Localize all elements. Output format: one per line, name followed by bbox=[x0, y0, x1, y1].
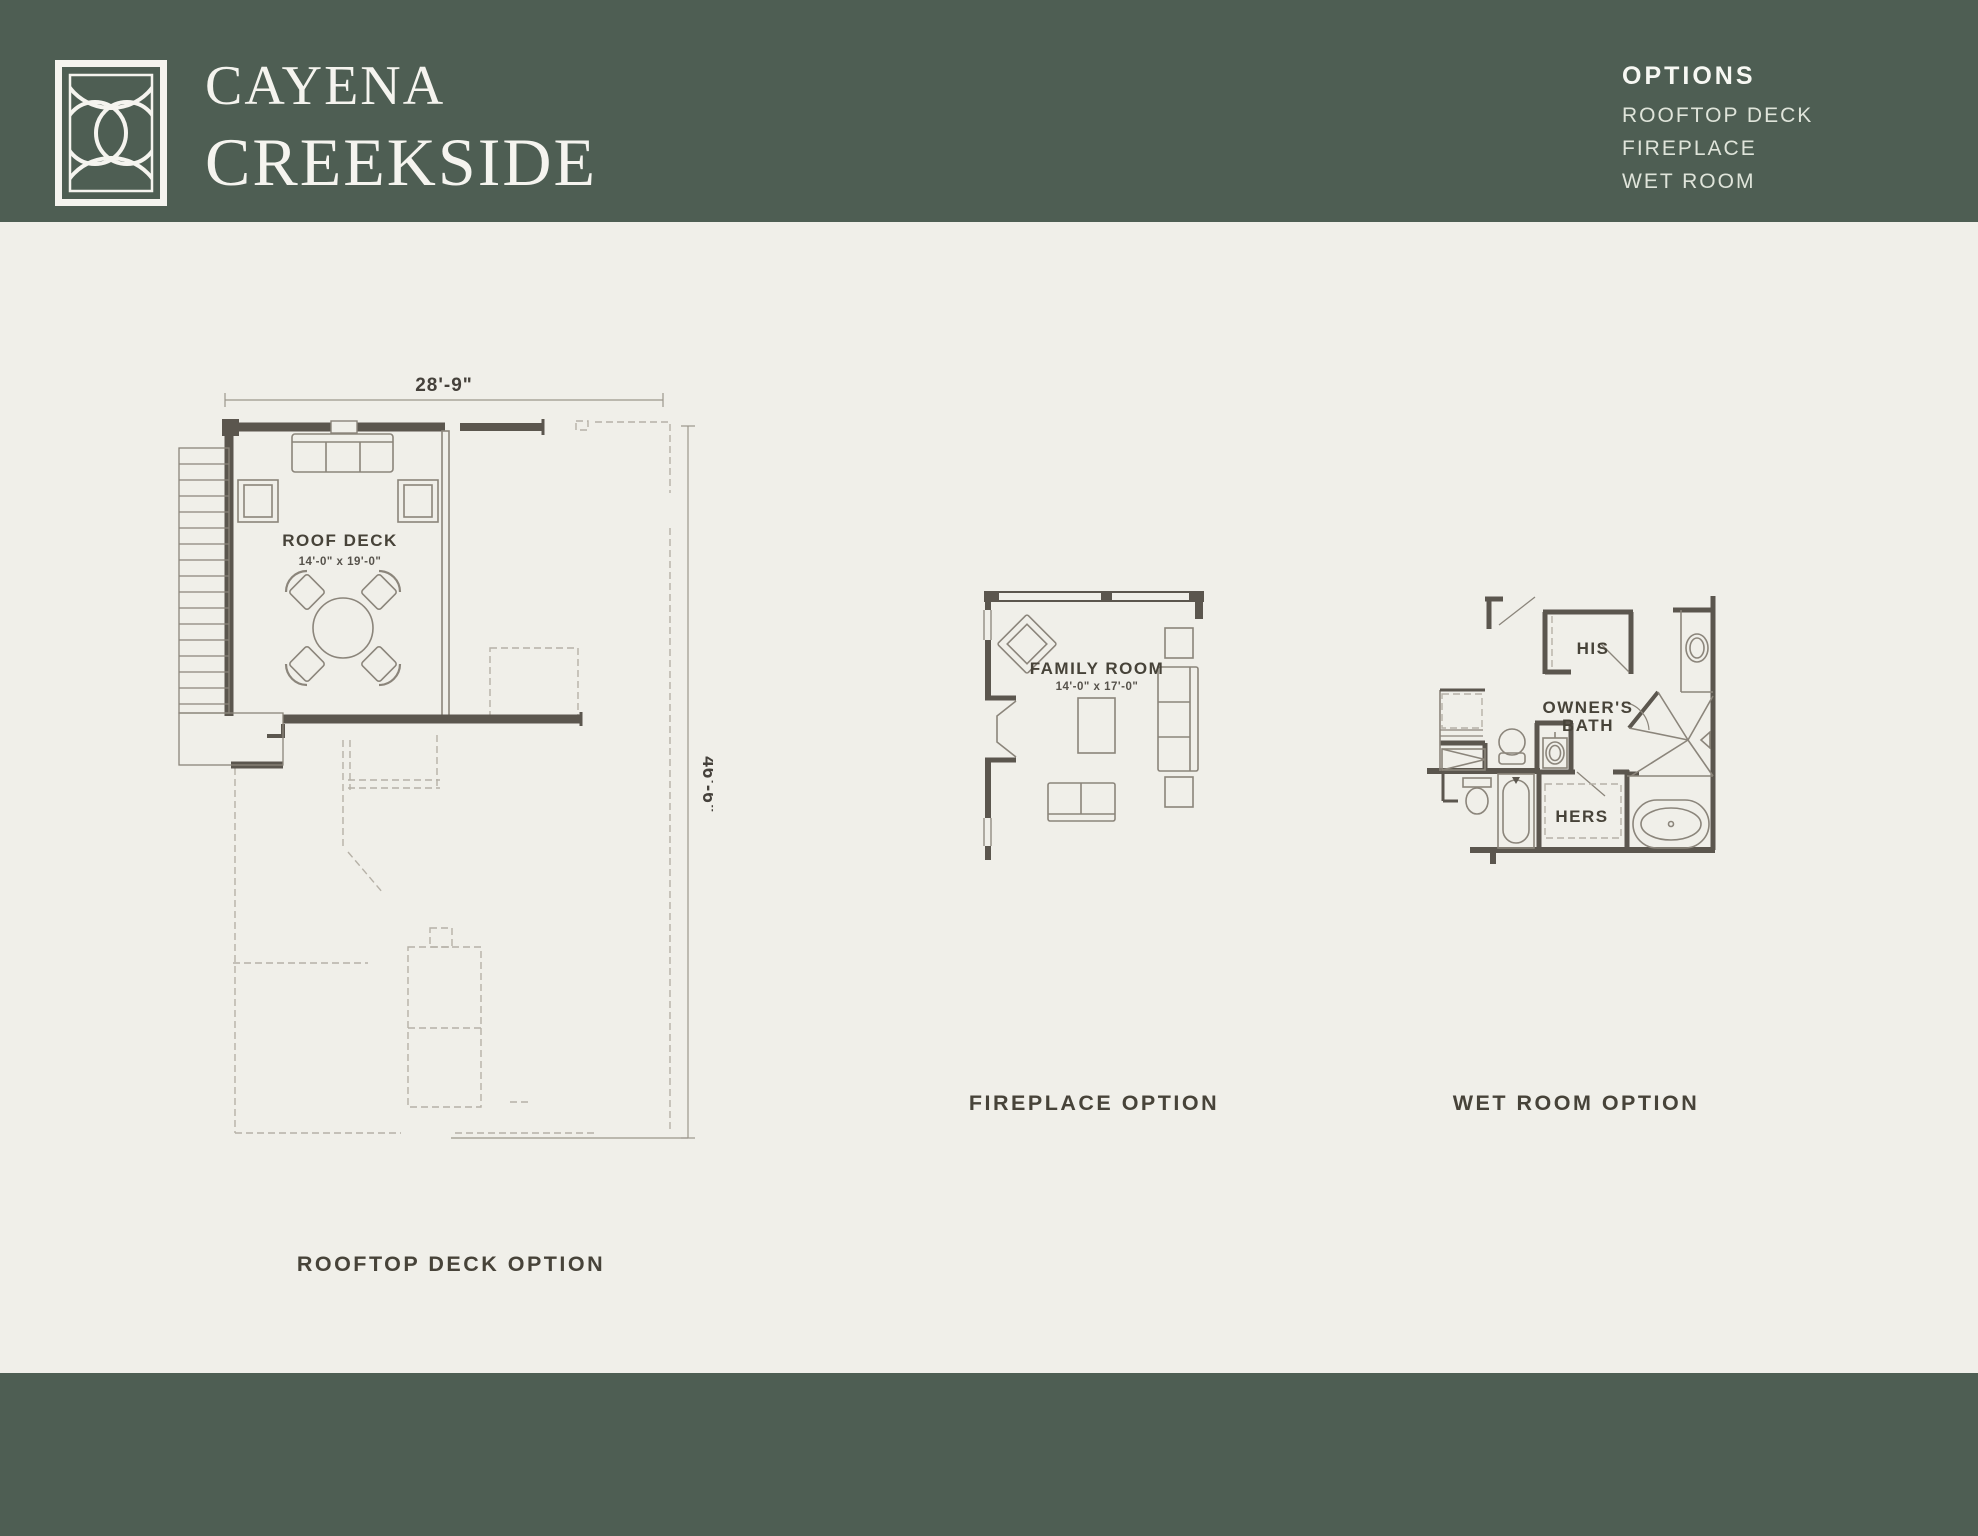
family-room-furniture bbox=[997, 614, 1198, 821]
brand-logo-icon bbox=[55, 60, 167, 206]
rooftop-deck-floorplan: 28'-9" 46'-6" bbox=[143, 288, 713, 1193]
height-dimension-label: 46'-6" bbox=[698, 756, 713, 814]
brand-name-line1: CAYENA bbox=[205, 58, 445, 114]
roof-outline-dashed bbox=[233, 421, 670, 1133]
wet-room-floorplan: HIS OWNER'S BATH HERS bbox=[1425, 572, 1745, 884]
his-closet-label: HIS bbox=[1577, 639, 1610, 658]
rooftop-deck-caption: ROOFTOP DECK OPTION bbox=[297, 1252, 605, 1277]
family-room-dims: 14'-0" x 17'-0" bbox=[1056, 681, 1139, 693]
header-band: CAYENA CREEKSIDE OPTIONS ROOFTOP DECK FI… bbox=[0, 0, 1978, 222]
options-list: OPTIONS ROOFTOP DECK FIREPLACE WET ROOM bbox=[1622, 62, 1813, 194]
roof-deck-dims: 14'-0" x 19'-0" bbox=[299, 556, 382, 568]
flyer-page: CAYENA CREEKSIDE OPTIONS ROOFTOP DECK FI… bbox=[0, 0, 1978, 1536]
options-title: OPTIONS bbox=[1622, 62, 1813, 91]
fireplace-floorplan: FAMILY ROOM 14'-0" x 17'-0" bbox=[970, 570, 1215, 870]
width-dimension-label: 28'-9" bbox=[415, 375, 473, 396]
fireplace-caption: FIREPLACE OPTION bbox=[969, 1091, 1219, 1116]
footer-band: Figures reflecting size, square footage,… bbox=[0, 1373, 1978, 1536]
wet-room-caption: WET ROOM OPTION bbox=[1453, 1091, 1700, 1116]
owners-bath-label-line2: BATH bbox=[1562, 716, 1614, 735]
family-room-label: FAMILY ROOM bbox=[1030, 659, 1165, 678]
option-item-wet-room: WET ROOM bbox=[1622, 170, 1813, 194]
hers-closet-label: HERS bbox=[1555, 807, 1608, 826]
option-item-rooftop-deck: ROOFTOP DECK bbox=[1622, 104, 1813, 128]
option-item-fireplace: FIREPLACE bbox=[1622, 137, 1813, 161]
brand-name-line2: CREEKSIDE bbox=[205, 128, 597, 196]
dimension-lines bbox=[225, 393, 695, 1138]
owners-bath-label-line1: OWNER'S bbox=[1542, 698, 1633, 717]
roof-deck-label: ROOF DECK bbox=[282, 531, 398, 550]
family-room-walls bbox=[984, 592, 1203, 860]
